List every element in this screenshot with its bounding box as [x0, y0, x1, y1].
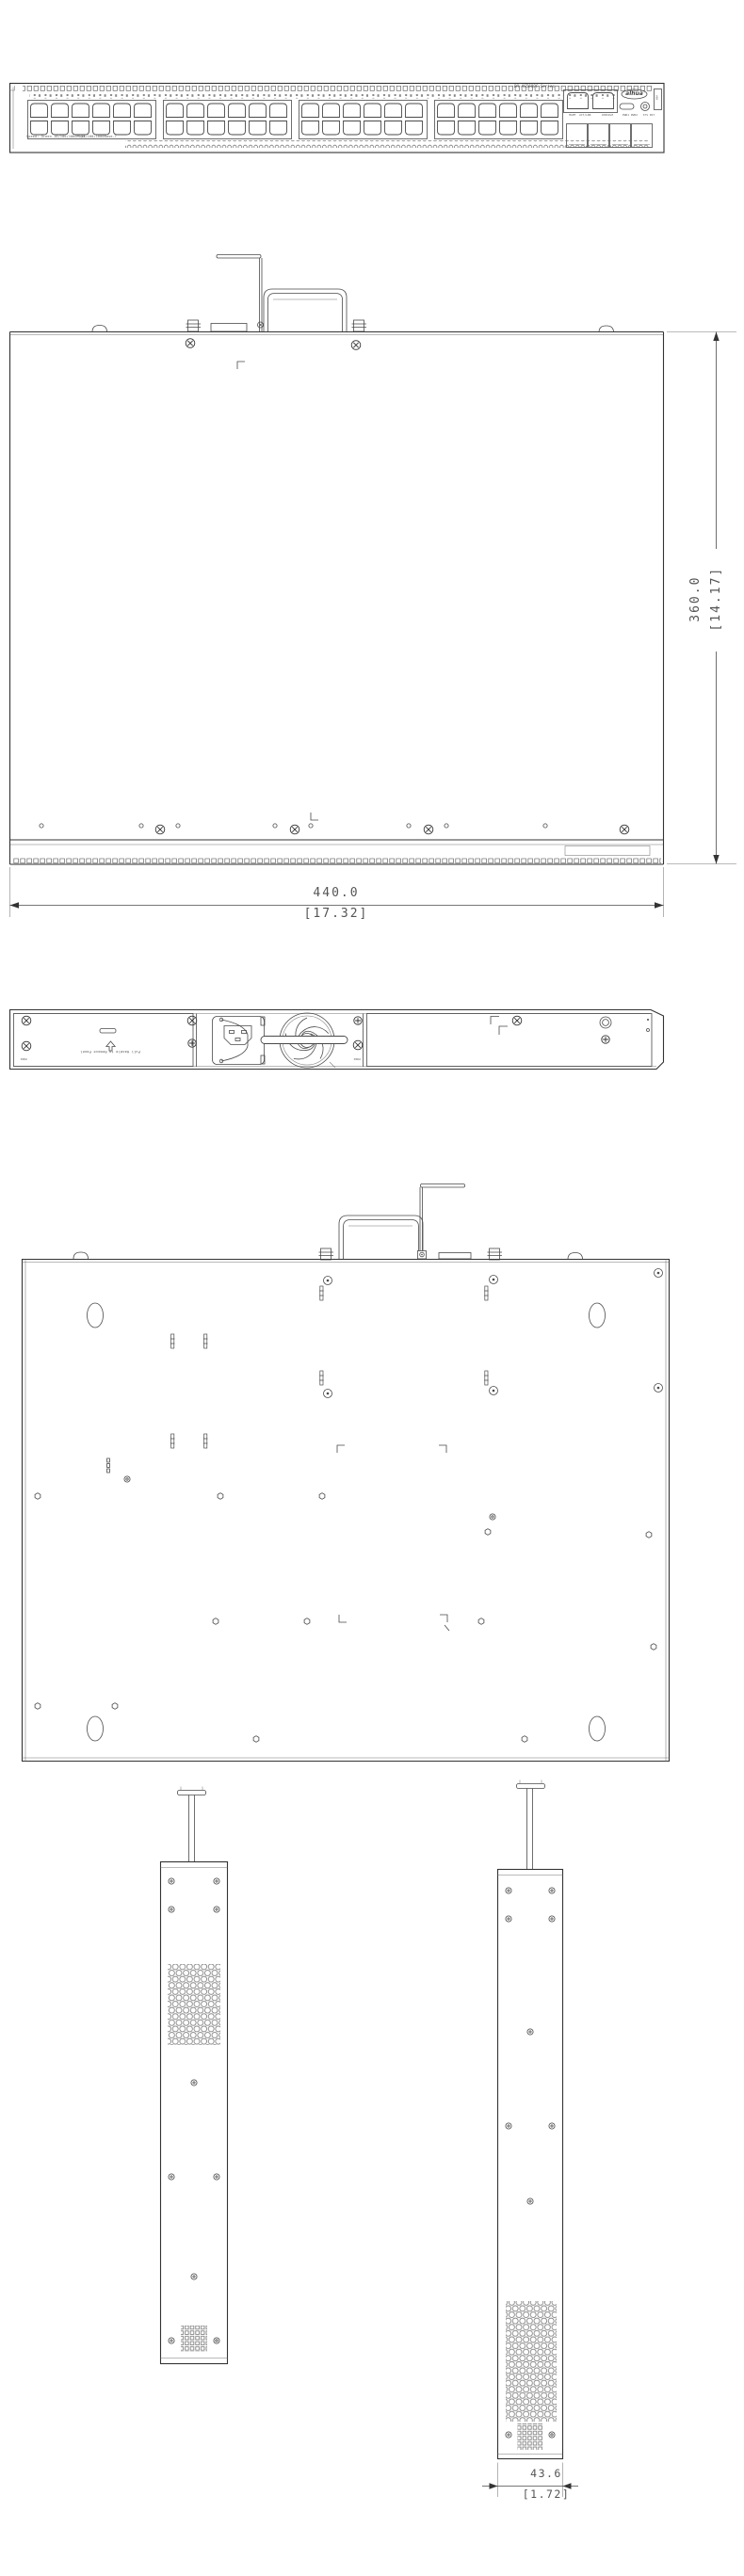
pwr-labels: PWR1 PWR2	[618, 114, 642, 117]
micro-usb-port	[620, 104, 634, 109]
mgmt-label: MGMT ACT/LNK	[564, 114, 596, 117]
reset-button	[641, 103, 650, 111]
dim-depth-mm: 360.0	[689, 547, 703, 651]
dim-depth-in: [14.17]	[710, 547, 723, 651]
corner-mark	[440, 1615, 449, 1631]
top-vent-row	[23, 86, 652, 93]
corner-mark	[311, 813, 318, 820]
uplink-ports	[564, 90, 618, 113]
drawing-canvas: DH-AS5600C Series alhua USB MGMT ACT/LNK…	[0, 0, 744, 2576]
speaker-grid	[518, 2423, 543, 2450]
bottom-view	[23, 1184, 670, 1762]
dim-side-in: [1.72]	[513, 2488, 579, 2501]
legend-ports: 10/100/1000Base-T	[81, 136, 117, 139]
side-view-right	[482, 1780, 578, 2498]
port-number-row	[29, 94, 563, 99]
ground-stud	[600, 1017, 611, 1043]
front-edge-serration	[13, 859, 661, 864]
drawing-geometry	[0, 0, 744, 2576]
brand-logo-text: alhua	[623, 91, 646, 98]
ac-inlet	[213, 1017, 265, 1065]
corner-marks	[491, 1017, 508, 1036]
honeycomb-vent	[168, 1964, 220, 2045]
dim-side-mm: 43.6	[513, 2468, 579, 2480]
bottom-vent-row	[125, 140, 649, 148]
dim-width-mm: 440.0	[284, 887, 388, 900]
corner-mark	[439, 1445, 446, 1453]
bottom-handle	[339, 1184, 465, 1260]
corner-mark	[339, 1615, 347, 1622]
sys-label: SYS RST	[641, 114, 656, 117]
console-label: CONSOLE	[595, 114, 620, 117]
panel-pull-slot	[100, 1029, 116, 1034]
dim-width-in: [17.32]	[284, 908, 388, 921]
rear-panel-note: Pull Handle to Remove Panel	[72, 1049, 149, 1053]
rear-view	[10, 1010, 664, 1070]
corner-mark	[237, 362, 245, 369]
bottom-screw-row	[40, 824, 629, 834]
front-view	[10, 84, 665, 153]
side-view-left	[161, 1787, 228, 2364]
corner-mark	[337, 1445, 345, 1453]
usb-label: USB	[655, 92, 657, 104]
psu-blank-panel	[14, 1014, 194, 1067]
rj45-port-grid	[28, 101, 563, 139]
honeycomb-vent	[506, 2301, 557, 2422]
model-series-label: DH-AS5600C Series	[514, 85, 555, 89]
rear-pwr1-label: PWR1	[16, 1057, 31, 1060]
speaker-grid	[181, 2326, 207, 2352]
psu-handle-bar	[261, 1037, 348, 1044]
legend-speed: Speed: Green 10/100/1000Mbps	[26, 136, 86, 139]
top-view	[10, 255, 737, 918]
bottom-features	[35, 1269, 662, 1743]
rear-pwr2-label: PWR2	[349, 1057, 364, 1060]
top-handle	[211, 255, 347, 332]
psu-module	[197, 1013, 364, 1068]
